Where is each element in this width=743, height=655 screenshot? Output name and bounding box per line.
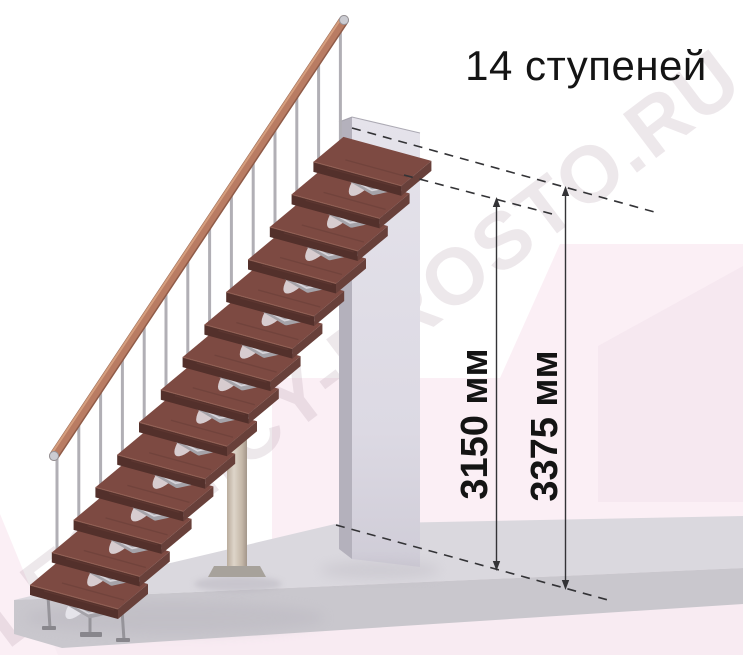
dim-3375-label: 3375 мм	[524, 350, 566, 501]
page-title: 14 ступеней	[465, 42, 707, 89]
dim-3150-label: 3150 мм	[454, 348, 496, 499]
rail-end-cap-top	[340, 16, 349, 25]
diagram-canvas: LESTNICY-PROSTO.RU	[0, 0, 743, 655]
staircase-diagram: LESTNICY-PROSTO.RU	[0, 0, 743, 655]
rail-end-cap-bottom	[50, 452, 59, 461]
stair-step	[313, 25, 431, 200]
